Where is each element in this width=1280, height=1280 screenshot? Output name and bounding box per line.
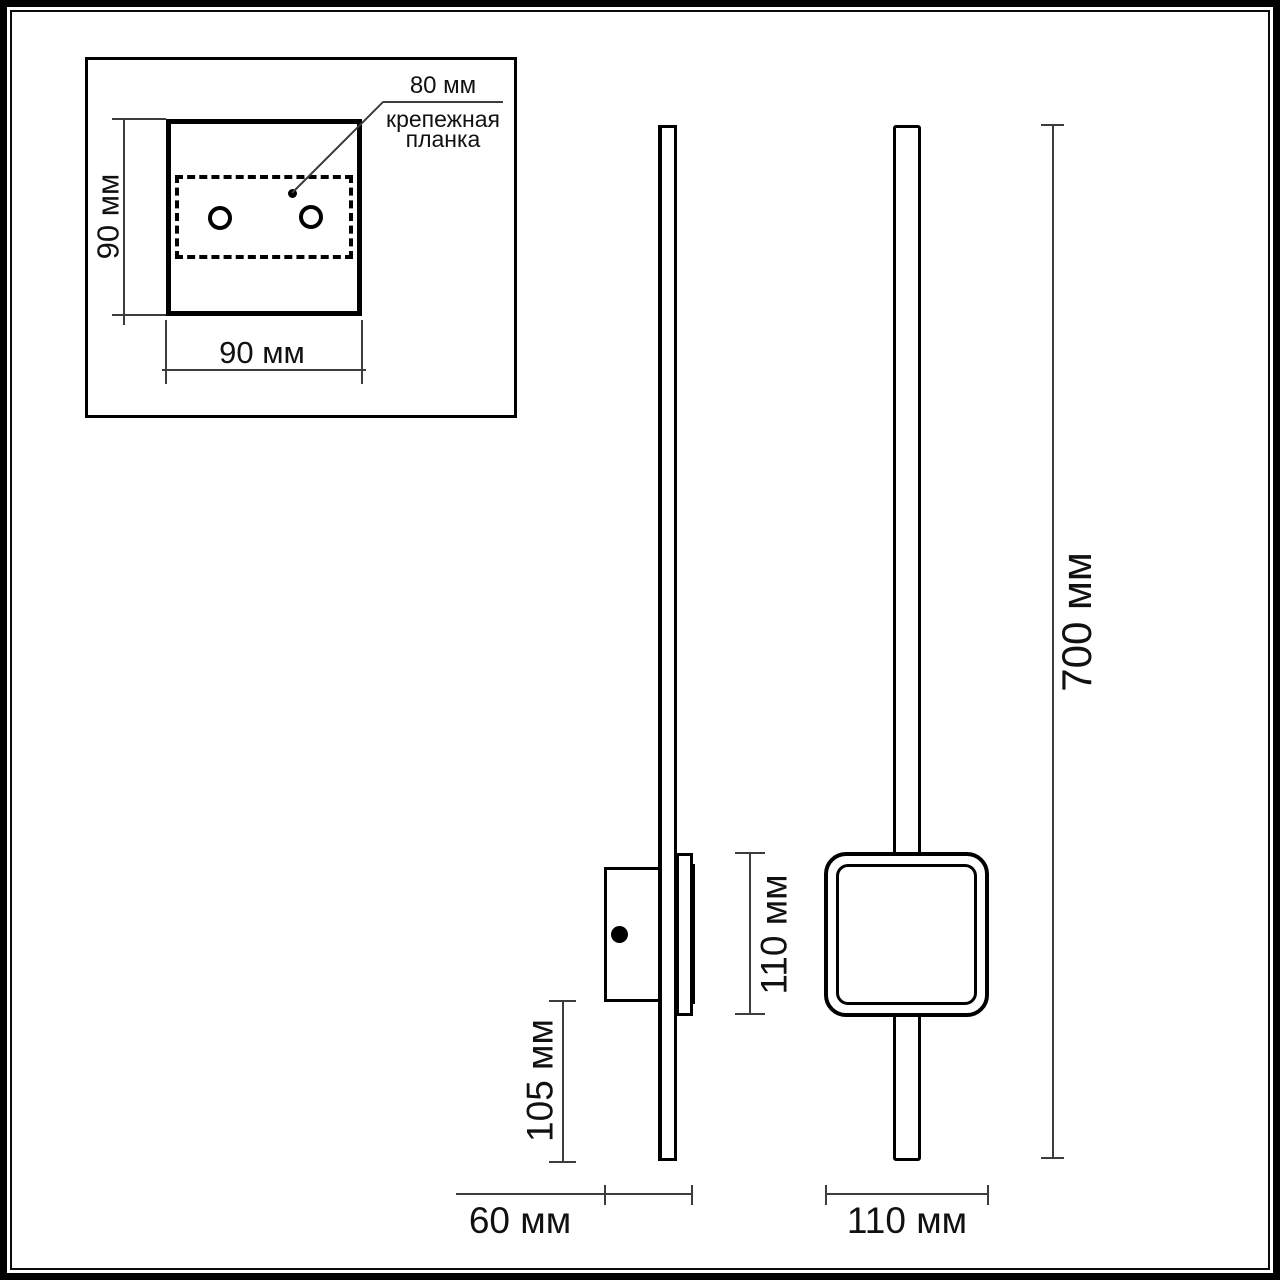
plate-name-line2: планка — [371, 128, 515, 150]
depth-dimension-line — [456, 1193, 693, 1195]
plate-width-label: 80 мм — [383, 74, 503, 98]
leader-line-horizontal — [383, 101, 503, 103]
frame-height-dimension-line — [749, 853, 751, 1015]
inset-width-label: 90 мм — [172, 337, 352, 368]
depth-label: 60 мм — [430, 1202, 610, 1239]
inset-height-extension-bottom — [112, 314, 166, 316]
mounting-hole-left — [208, 206, 232, 230]
mounting-strip-dashed — [175, 175, 353, 259]
lamp-bar-side — [658, 125, 677, 1161]
inset-width-extension-right — [361, 320, 363, 384]
frame-width-label: 110 мм — [817, 1202, 997, 1239]
inset-width-extension-left — [165, 320, 167, 384]
overhang-dimension-line — [562, 1001, 564, 1163]
total-height-label: 700 мм — [1056, 512, 1098, 732]
overhang-label: 105 мм — [522, 991, 559, 1171]
frame-height-label: 110 мм — [756, 845, 793, 1025]
inset-height-label: 90 мм — [93, 127, 124, 307]
square-frame-inner — [836, 864, 977, 1005]
total-height-cap-bottom — [1041, 1157, 1064, 1159]
inset-height-extension-top — [112, 118, 166, 120]
total-height-cap-top — [1041, 124, 1064, 126]
frame-width-dimension-line — [826, 1193, 989, 1195]
technical-drawing-wall-lamp: 80 мм крепежная планка 90 мм 90 мм 105 м… — [0, 0, 1280, 1280]
depth-tick-front — [691, 1185, 693, 1205]
mounting-hole-right — [299, 205, 323, 229]
frame-profile-side — [676, 853, 693, 1016]
screw-icon — [611, 926, 628, 943]
